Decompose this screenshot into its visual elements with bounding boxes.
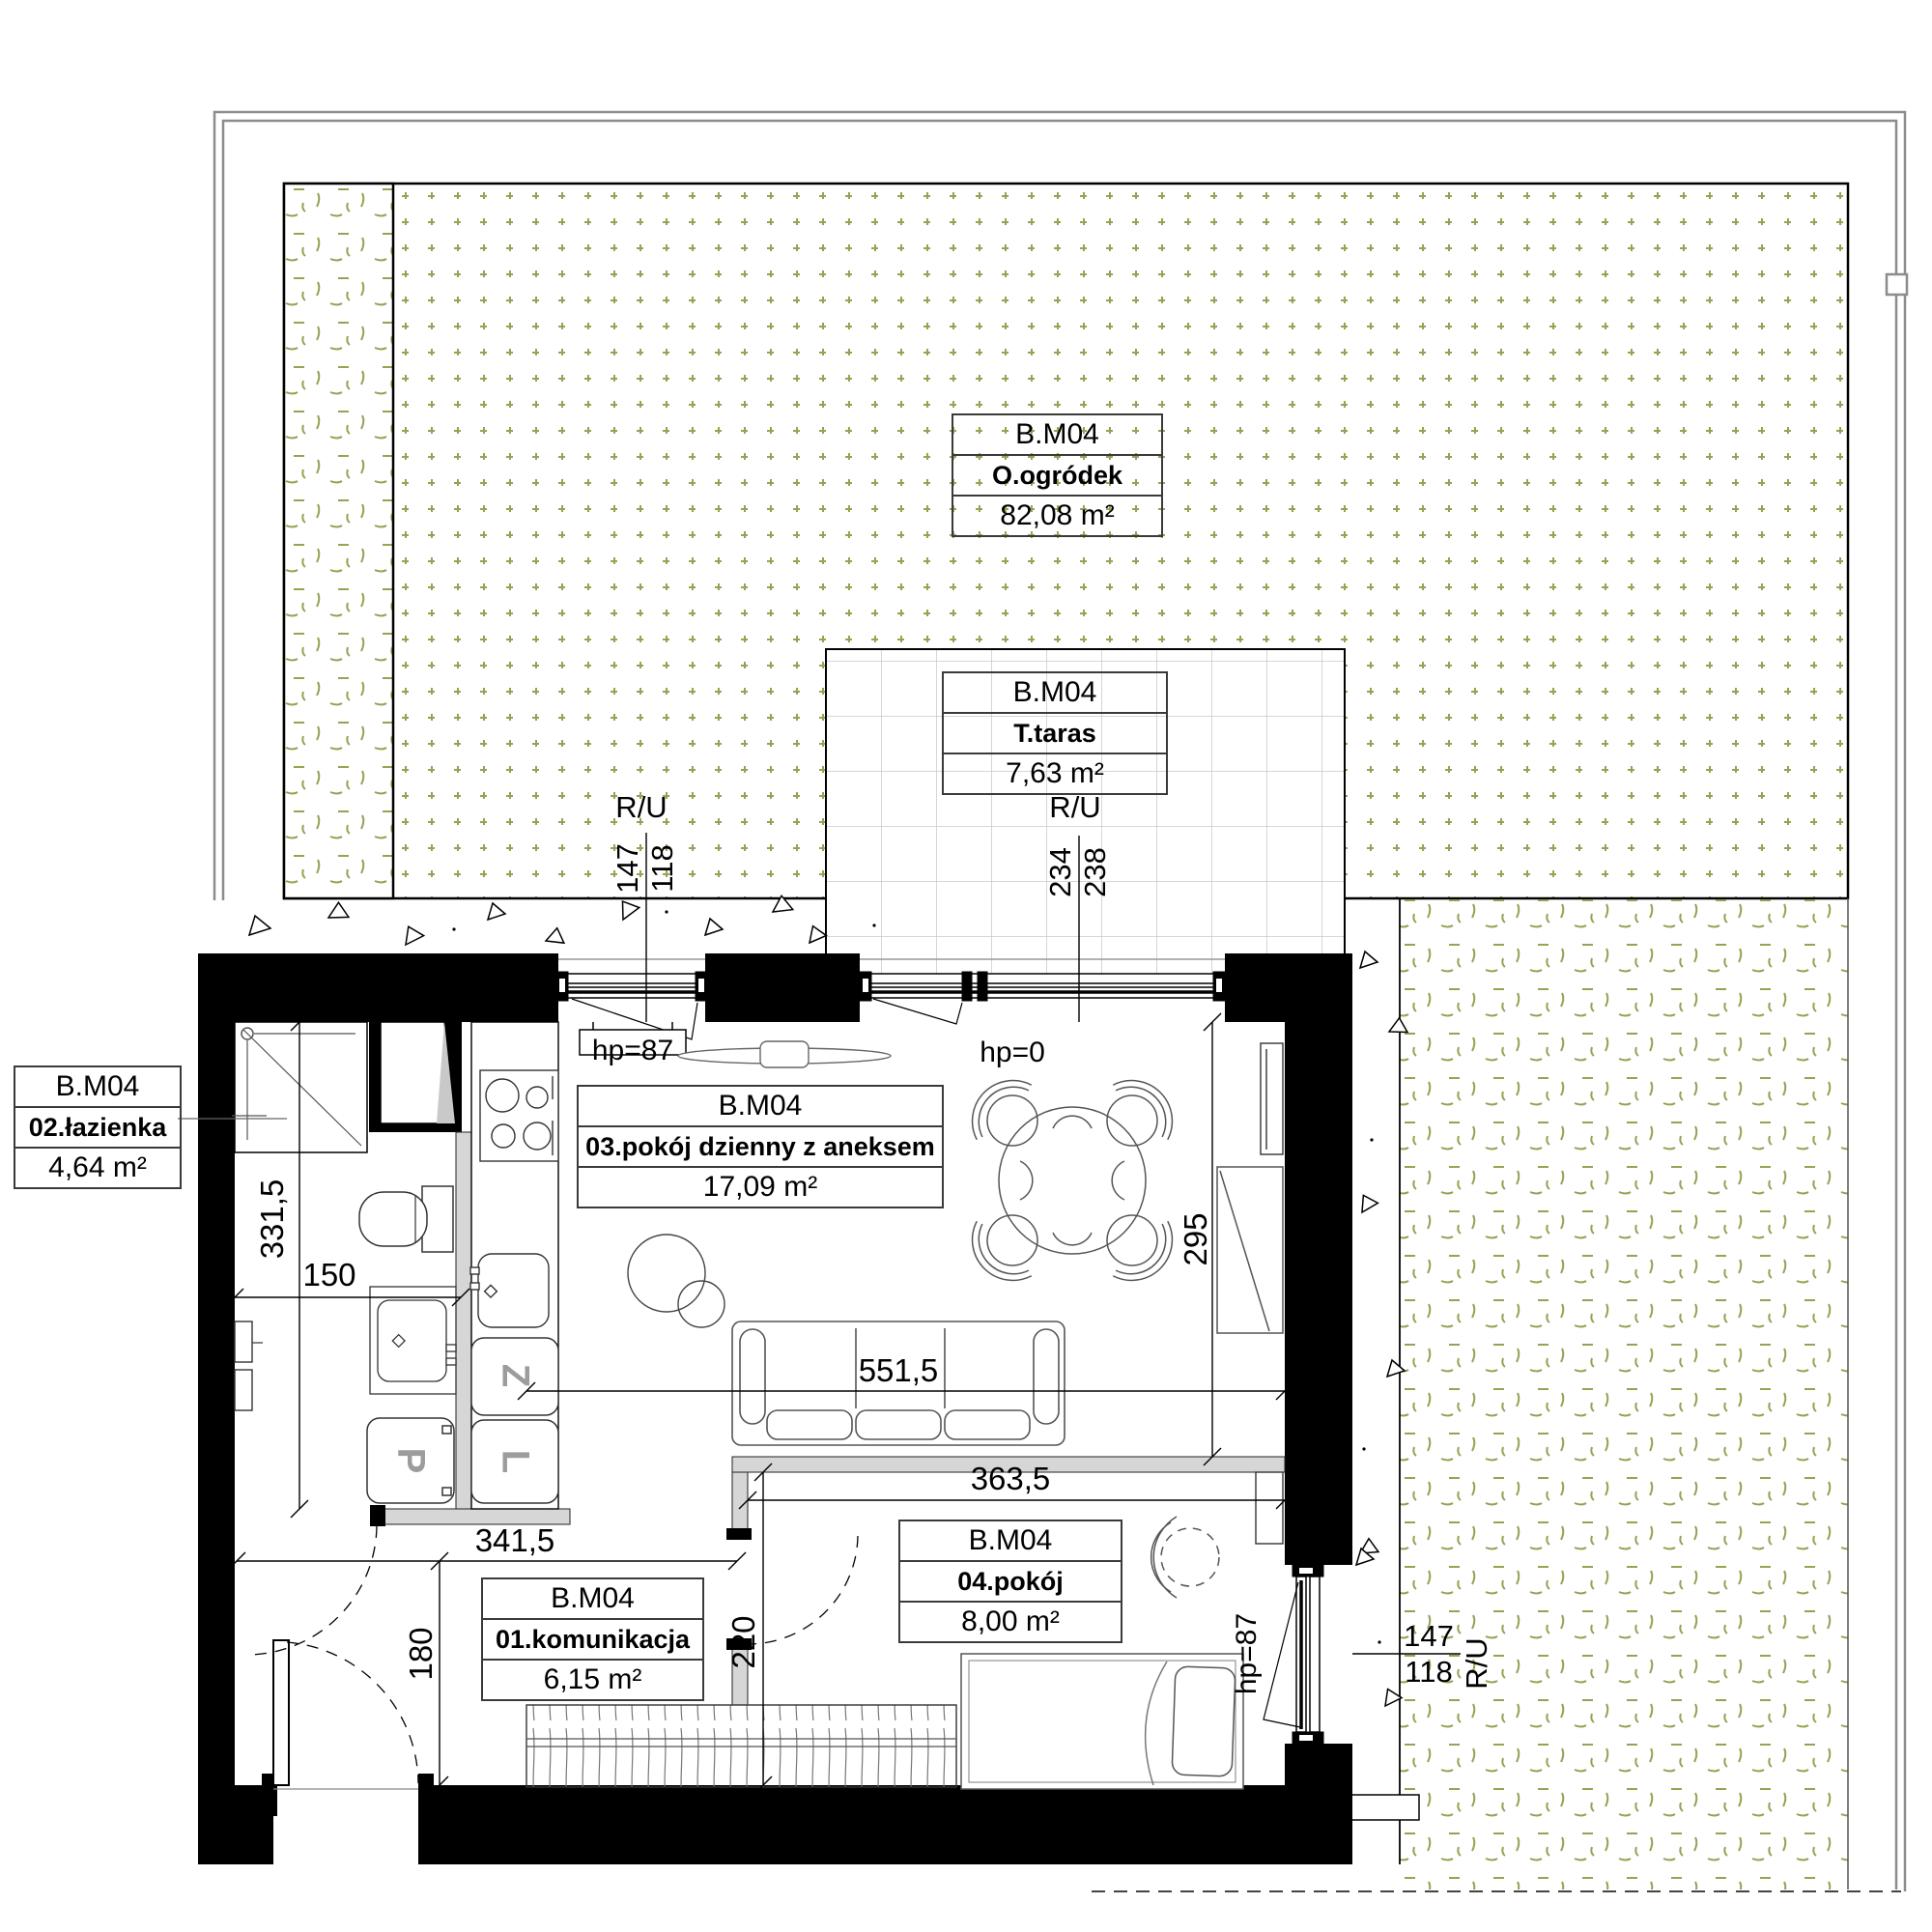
dining-table [999,1107,1146,1254]
tv-sideboard [678,1041,891,1067]
bed [961,1654,1243,1789]
living-radiator [1261,1043,1283,1154]
room-label-room4: B.M04 04.pokój 8,00 m² [898,1520,1122,1643]
desk-chair [1151,1517,1219,1598]
dim-bath-height: 331,5 [254,1179,291,1260]
bathroom-door-swing [248,1526,377,1655]
room-label-name: 01.komunikacja [483,1618,702,1659]
room-label-area: 7,63 m² [944,753,1166,793]
room-label-hall: B.M04 01.komunikacja 6,15 m² [481,1577,704,1701]
kitchen-window [556,959,707,1039]
room4-window-height: 118 [1405,1655,1452,1690]
room4-door-swing [750,1536,858,1644]
washing-machine-letter: P [389,1448,433,1474]
room4-window-width: 147 [1404,1619,1454,1654]
room4-window-ru-label: R/U [1460,1637,1494,1689]
dim-room4-width: 363,5 [971,1461,1051,1497]
room-label-unit: B.M04 [953,415,1161,454]
kitchen-window-hp: hp=87 [592,1035,673,1067]
dim-hall-width: 341,5 [475,1522,555,1559]
room-label-name: O.ogródek [953,454,1161,495]
entrance-door [273,1640,418,1789]
terrace-door-height: 238 [1078,847,1113,897]
room-label-area: 82,08 m² [953,495,1161,535]
fridge-letter: L [494,1450,537,1473]
exterior-step [1346,1795,1419,1820]
living-wardrobe [1217,1167,1283,1333]
dim-living-height: 295 [1178,1212,1214,1265]
room-label-name: 04.pokój [900,1560,1121,1601]
toilet [359,1186,453,1252]
bathroom-radiator [235,1321,263,1410]
room-label-bathroom: B.M04 02.łazienka 4,64 m² [14,1065,182,1189]
plant [628,1235,724,1327]
kitchen-sink [470,1254,549,1327]
dishwasher-letter: Z [494,1364,537,1387]
room4-window-hp: hp=87 [1231,1613,1264,1694]
room-label-unit: B.M04 [944,673,1166,712]
garden-right-area [1400,898,1848,1889]
room-label-area: 8,00 m² [900,1601,1121,1641]
terrace-door-hp: hp=0 [980,1037,1045,1069]
room-label-garden: B.M04 O.ogródek 82,08 m² [952,413,1163,537]
room-label-terrace: B.M04 T.taras 7,63 m² [942,671,1168,795]
cooktop [480,1070,558,1161]
room4-window [1264,1565,1323,1744]
room-label-area: 6,15 m² [483,1659,702,1699]
terrace-door-ru-label: R/U [1049,790,1100,825]
room-label-area: 17,09 m² [579,1166,942,1207]
washbasin [370,1287,456,1394]
kitchen-window-ru-label: R/U [615,790,667,825]
dim-bath-width: 150 [302,1257,355,1293]
hall-wardrobe [526,1705,956,1787]
kitchen-window-width: 147 [611,843,645,894]
dim-living-width: 551,5 [859,1352,939,1389]
dim-entry-depth: 180 [403,1627,440,1680]
kitchen-window-height: 118 [645,844,680,892]
room-label-name: 02.łazienka [15,1106,180,1147]
room-label-name: 03.pokój dzienny z aneksem [579,1125,942,1166]
terrace-door-width: 234 [1043,847,1078,897]
room-label-name: T.taras [944,712,1166,753]
room-label-living: B.M04 03.pokój dzienny z aneksem 17,09 m… [577,1085,944,1208]
floor-plan-page: B.M04 O.ogródek 82,08 m² B.M04 T.taras 7… [0,0,1932,1932]
dim-room-door-depth: 220 [725,1615,762,1668]
room-label-unit: B.M04 [900,1521,1121,1560]
installation-shaft [369,1014,462,1132]
room-label-unit: B.M04 [483,1579,702,1618]
room-label-area: 4,64 m² [15,1147,180,1187]
room-label-unit: B.M04 [15,1067,180,1106]
room4-radiator [1256,1472,1283,1544]
room-label-unit: B.M04 [579,1087,942,1125]
